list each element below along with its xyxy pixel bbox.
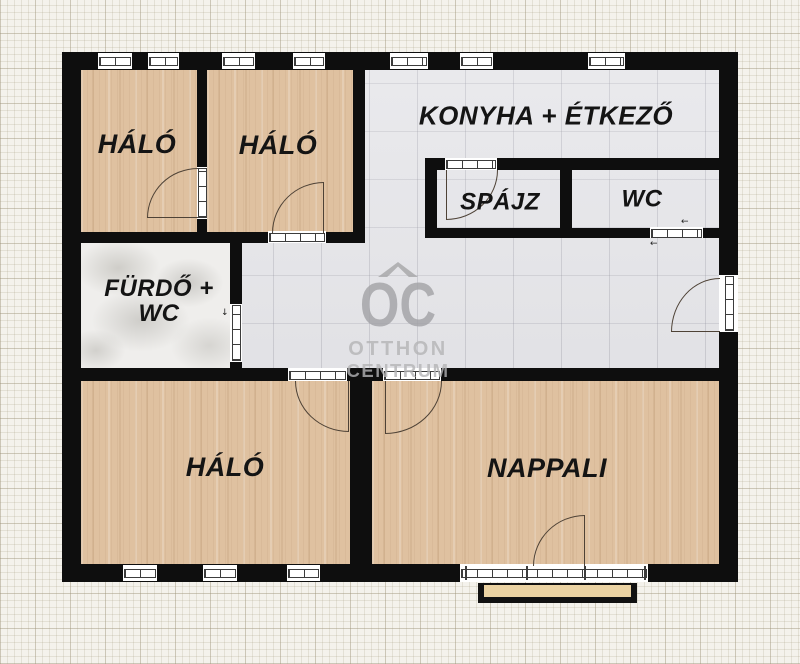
wall-bed1-bed2-lower (197, 219, 207, 232)
mullion (526, 566, 528, 580)
window (287, 565, 320, 581)
label-bedroom-bottom: HÁLÓ (186, 453, 265, 481)
door-opening-pantry (445, 158, 497, 170)
floor-plan-canvas: ← ← ↓ HÁLÓ HÁLÓ KONYHA + ÉTKEZŐ SPÁJZ WC… (0, 0, 800, 664)
sliding-door-bathroom (230, 304, 242, 362)
window (123, 565, 157, 581)
label-living: NAPPALI (487, 454, 607, 482)
wall-bed3-living (350, 381, 372, 564)
wall-pantry-wc-divider (560, 170, 572, 228)
label-bathroom: FÜRDŐ + WC (104, 276, 214, 326)
swing-arrow-icon: ↓ (221, 309, 229, 318)
window (460, 53, 493, 69)
slide-arrow-icon: ← (650, 240, 658, 249)
mullion (644, 566, 646, 580)
watermark-otthon-centrum-logo: OC OTTHON CENTRUM (328, 262, 468, 381)
watermark-monogram: OC (341, 277, 456, 334)
wall-bed1-bed2-upper (197, 70, 207, 167)
mullion (465, 566, 467, 580)
label-wc: WC (622, 186, 663, 211)
window (222, 53, 255, 69)
window (588, 53, 625, 69)
balcony (478, 583, 637, 603)
sliding-door-wc (650, 227, 703, 238)
wall-pantry-top-a (425, 158, 445, 170)
wall-h368-a (81, 368, 288, 381)
label-pantry: SPÁJZ (460, 189, 540, 214)
window (203, 565, 237, 581)
wall-bathroom-right-upper (230, 243, 242, 304)
wall-pantry-bottom-b (703, 228, 719, 238)
wall-h232-right (326, 232, 353, 243)
watermark-name-line1: OTTHON (328, 338, 468, 360)
wall-h232-left (81, 232, 268, 243)
label-kitchen-dining: KONYHA + ÉTKEZŐ (419, 102, 673, 129)
watermark-name-line2: CENTRUM (328, 361, 468, 381)
wall-pantry-bottom-a (425, 228, 650, 238)
window (390, 53, 428, 69)
wall-outer-right-lower (719, 331, 738, 582)
label-bedroom-top-mid: HÁLÓ (239, 131, 318, 159)
window (98, 53, 132, 69)
wall-outer-left (62, 52, 81, 582)
window (293, 53, 325, 69)
window (148, 53, 179, 69)
mullion (584, 566, 586, 580)
wall-h368-c (441, 368, 719, 381)
wall-bathroom-right-lower (230, 361, 242, 368)
wall-pantry-top-b (497, 158, 719, 170)
label-bathroom-line2: WC (104, 301, 214, 326)
wall-bed2-kitchen (353, 70, 365, 243)
door-opening-bed1 (197, 167, 207, 219)
label-bathroom-line1: FÜRDŐ + (104, 276, 214, 301)
wall-outer-right-upper (719, 52, 738, 275)
balcony-door-unit (460, 564, 648, 582)
door-opening-entrance (719, 275, 738, 332)
label-bedroom-top-left: HÁLÓ (98, 130, 177, 158)
slide-arrow-icon: ← (681, 218, 689, 227)
